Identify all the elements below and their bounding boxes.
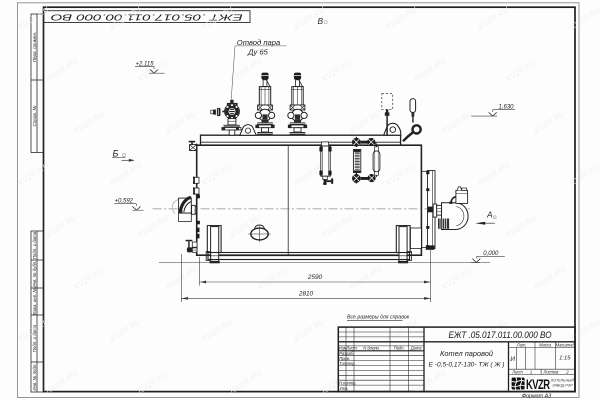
svg-text:1: 1 <box>530 370 532 375</box>
svg-text:Е -0,5-0,17-130- ТЖ ( Ж ): Е -0,5-0,17-130- ТЖ ( Ж ) <box>429 361 505 368</box>
svg-text:Инв. № подл.: Инв. № подл. <box>32 363 37 390</box>
svg-text:И: И <box>510 356 515 363</box>
svg-text:В: В <box>318 16 324 26</box>
svg-text:Б: Б <box>113 149 119 159</box>
svg-text:Подп.: Подп. <box>394 346 405 351</box>
svg-text:А: А <box>486 209 493 219</box>
svg-text:Н.контр.: Н.контр. <box>339 380 356 385</box>
svg-text:Лит.: Лит. <box>516 342 527 347</box>
svg-text:2590: 2590 <box>307 274 323 281</box>
svg-text:Инв. № дубл.: Инв. № дубл. <box>32 260 37 287</box>
svg-text:Утв.: Утв. <box>339 386 348 391</box>
svg-text:2810: 2810 <box>298 291 314 298</box>
svg-text:Подп. и дата: Подп. и дата <box>32 231 37 259</box>
svg-text:КОТЕЛЬНЫЙ: КОТЕЛЬНЫЙ <box>551 379 574 383</box>
svg-text:Листов: Листов <box>543 370 560 375</box>
svg-text:Лист: Лист <box>345 346 357 351</box>
svg-text:Все размеры для справок: Все размеры для справок <box>347 315 410 321</box>
svg-text:N докум.: N докум. <box>363 346 380 351</box>
svg-text:ЕЖТ .05.017.011.00.000 ВО: ЕЖТ .05.017.011.00.000 ВО <box>449 329 553 340</box>
svg-text:Справ. №: Справ. № <box>32 106 37 127</box>
svg-text:Масштаб: Масштаб <box>556 342 576 347</box>
svg-text:1:15: 1:15 <box>559 356 571 362</box>
svg-text:KVZR: KVZR <box>526 377 550 392</box>
svg-text:Дата: Дата <box>410 346 423 351</box>
svg-text:Ду 65: Ду 65 <box>247 47 269 56</box>
svg-text:ЗАВОД РЭР: ЗАВОД РЭР <box>552 384 573 388</box>
svg-text:Взам. инв. №: Взам. инв. № <box>32 288 37 315</box>
svg-text:Т.контр.: Т.контр. <box>339 361 356 366</box>
svg-text:Перв. примен.: Перв. примен. <box>32 32 37 63</box>
svg-text:Котел паровой: Котел паровой <box>440 349 493 358</box>
svg-text:Лист: Лист <box>511 370 523 375</box>
svg-text:Формат А3: Формат А3 <box>522 393 552 399</box>
svg-text:Масса: Масса <box>539 342 552 347</box>
